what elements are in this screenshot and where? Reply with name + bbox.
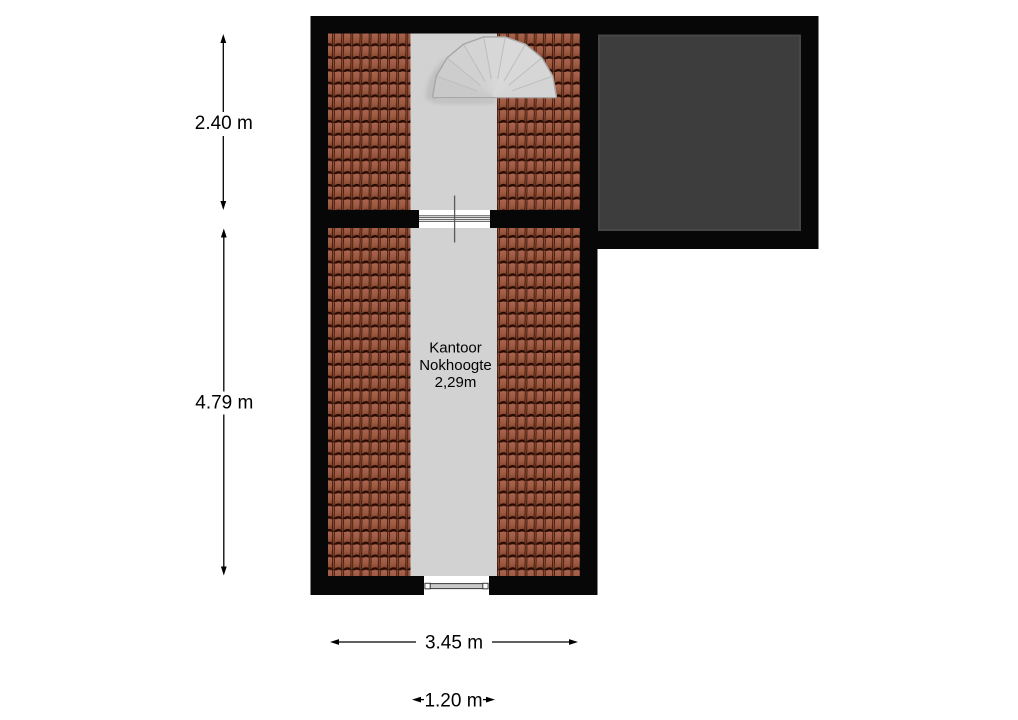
svg-text:3.45 m: 3.45 m <box>425 633 483 654</box>
svg-text:Nokhoogte: Nokhoogte <box>419 357 492 374</box>
svg-text:Kantoor: Kantoor <box>429 340 482 357</box>
svg-text:2.40 m: 2.40 m <box>195 113 253 134</box>
svg-text:4.79 m: 4.79 m <box>195 393 253 414</box>
svg-text:1.20 m: 1.20 m <box>424 690 482 711</box>
svg-text:2,29m: 2,29m <box>435 374 477 391</box>
